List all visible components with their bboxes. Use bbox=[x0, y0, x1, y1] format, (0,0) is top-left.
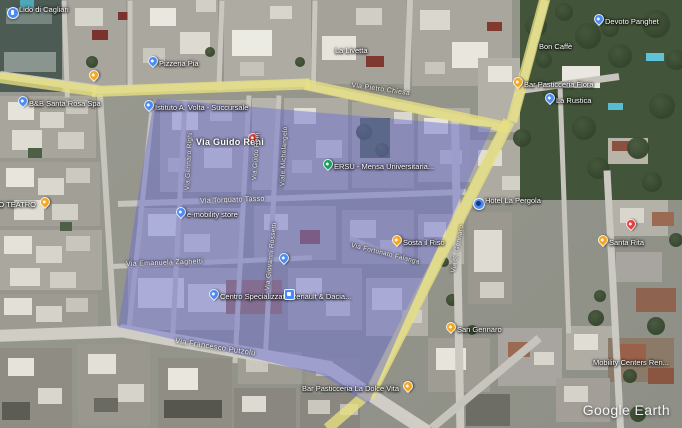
bar-pasticceria-la-dolce-vita-icon[interactable] bbox=[401, 379, 415, 393]
sosta-il-riso-icon[interactable] bbox=[390, 233, 404, 247]
e-mobility-store-label: e-mobility store bbox=[187, 210, 238, 219]
lido-di-cagliari-label: Lido di Cagliari bbox=[19, 5, 69, 14]
viale-michelangelo-label: Viale Michelangelo bbox=[279, 126, 289, 186]
ersu-mensa-universitaria-icon[interactable] bbox=[321, 157, 335, 171]
bb-santa-rosa-spa-label: B&B Santa Rosa Spa bbox=[29, 99, 101, 108]
map-canvas[interactable]: Lido di CagliariPizzeria PiaIstituto A. … bbox=[0, 0, 682, 428]
bar-pasticceria-flora-icon[interactable] bbox=[511, 75, 525, 89]
la-rustica-label: La Rustica bbox=[556, 96, 591, 105]
bb-santa-rosa-spa-icon[interactable] bbox=[16, 94, 30, 108]
via-francesco-putzolu-label: Via Francesco Putzolu bbox=[175, 336, 257, 358]
via-torquato-tasso-label: Via Torquato Tasso bbox=[200, 196, 265, 205]
santa-rita-label: Santa Rita bbox=[609, 238, 644, 247]
nuovo-teatro-label: NUOVO TEATRO bbox=[0, 200, 36, 209]
unnamed-blue-pin-icon[interactable] bbox=[277, 251, 291, 265]
via-gennaro-righi-label: Via Gennaro Righi bbox=[184, 132, 194, 190]
unnamed-red-pin-icon[interactable] bbox=[624, 217, 638, 231]
hotel-la-pergola-icon[interactable] bbox=[473, 198, 485, 210]
devoto-panghet-label: Devoto Panghet bbox=[605, 17, 659, 26]
via-giovanni-rossetti-label: Via Giovanni Rossetti bbox=[264, 222, 278, 291]
la-rustica-icon[interactable] bbox=[543, 91, 557, 105]
pizzeria-pia-label: Pizzeria Pia bbox=[159, 59, 199, 68]
ersu-mensa-universitaria-label: ERSU - Mensa Universitaria... bbox=[334, 162, 434, 171]
e-mobility-store-icon[interactable] bbox=[174, 205, 188, 219]
bar-pasticceria-la-dolce-vita-label: Bar Pasticceria La Dolce Vita bbox=[302, 384, 399, 393]
istituto-a-volta-icon[interactable] bbox=[142, 98, 156, 112]
roadside-orange-pin-icon[interactable] bbox=[87, 68, 101, 82]
la-livetta-label: La Livetta bbox=[335, 46, 368, 55]
lido-di-cagliari-icon[interactable] bbox=[7, 7, 19, 19]
transit-stop-icon[interactable] bbox=[284, 289, 295, 300]
pizzeria-pia-icon[interactable] bbox=[146, 54, 160, 68]
via-pietro-chiesa-label: Via Pietro Chiesa bbox=[351, 82, 410, 97]
via-san-gennaro-label: Via S. Gennaro bbox=[450, 224, 465, 273]
nuovo-teatro-icon[interactable] bbox=[38, 195, 52, 209]
devoto-panghet-icon[interactable] bbox=[592, 12, 606, 26]
bar-pasticceria-flora-label: Bar Pasticceria Flora bbox=[524, 80, 594, 89]
san-gennaro-label: San Gennaro bbox=[457, 325, 502, 334]
map-annotations: Lido di CagliariPizzeria PiaIstituto A. … bbox=[0, 0, 682, 428]
hotel-la-pergola-label: Hotel La Pergola bbox=[485, 196, 541, 205]
bon-caffe-label: Bon Caffè bbox=[539, 42, 572, 51]
mobility-centers-label: Mobility Centers Ren... bbox=[593, 358, 669, 367]
san-gennaro-icon[interactable] bbox=[444, 320, 458, 334]
renault-dacia-center-icon[interactable] bbox=[207, 287, 221, 301]
santa-rita-icon[interactable] bbox=[596, 233, 610, 247]
via-emanuela-zaghetti-label: Via Emanuela Zaghetti bbox=[126, 258, 203, 268]
istituto-a-volta-label: Istituto A. Volta - Succursale bbox=[155, 103, 248, 112]
google-earth-watermark: Google Earth bbox=[583, 402, 670, 418]
sosta-il-riso-label: Sosta il Riso bbox=[403, 238, 445, 247]
